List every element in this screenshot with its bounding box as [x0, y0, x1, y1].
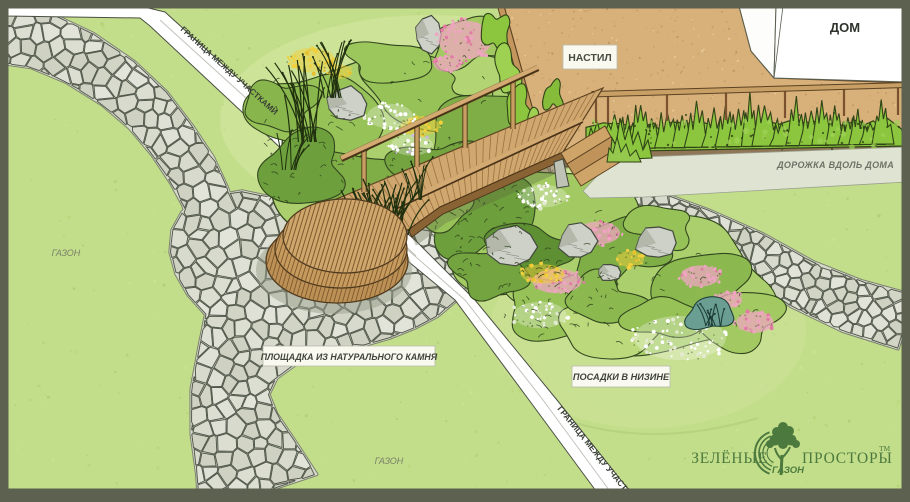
- svg-text:ГАЗОН: ГАЗОН: [52, 248, 81, 258]
- svg-text:ГАЗОН: ГАЗОН: [772, 465, 805, 476]
- svg-text:ТМ: ТМ: [879, 444, 890, 453]
- svg-text:ЗЕЛЁНЫЕ: ЗЕЛЁНЫЕ: [691, 450, 768, 467]
- svg-text:ПЛОЩАДКА ИЗ НАТУРАЛЬНОГО КАМНЯ: ПЛОЩАДКА ИЗ НАТУРАЛЬНОГО КАМНЯ: [261, 352, 438, 362]
- svg-text:ДОМ: ДОМ: [830, 20, 860, 35]
- svg-text:ДОРОЖКА ВДОЛЬ ДОМА: ДОРОЖКА ВДОЛЬ ДОМА: [776, 160, 894, 170]
- svg-text:ПОСАДКИ В НИЗИНЕ: ПОСАДКИ В НИЗИНЕ: [573, 372, 670, 382]
- svg-text:ГАЗОН: ГАЗОН: [375, 456, 404, 466]
- svg-text:НАСТИЛ: НАСТИЛ: [568, 52, 612, 64]
